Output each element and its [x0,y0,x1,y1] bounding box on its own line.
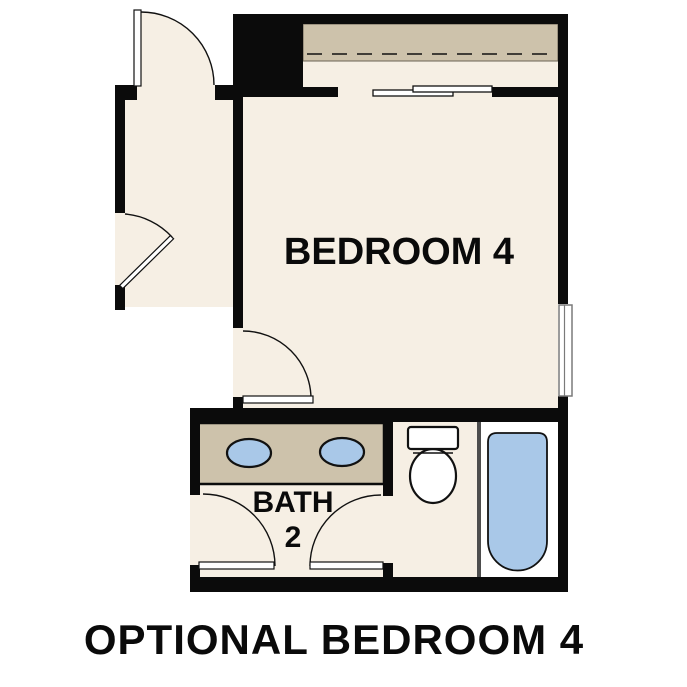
toilet-tank [408,427,458,449]
bath-left-wall [190,422,200,495]
bath-top-wall [190,408,568,422]
hall-left-wall [115,85,125,213]
toilet-compartment-door-leaf [310,562,383,569]
hallway-floor [125,85,233,307]
room-label-bath: BATH [252,486,333,519]
wall-right-upper [558,14,568,304]
toilet-bowl [410,449,456,503]
bedroom-door-leaf [243,396,313,403]
window-frame [559,305,572,396]
bathtub [488,433,547,571]
toilet-compartment-wall-stub [383,563,393,577]
tub-partition-wall [477,422,481,577]
floor-plan: BEDROOM 4 BATH 2 OPTIONAL BEDROOM 4 [0,0,687,687]
door-opening [190,495,200,567]
closet-front-wall-left [233,87,338,97]
room-label-bath-number: 2 [285,521,302,554]
door-opening [233,328,243,397]
caption-title: OPTIONAL BEDROOM 4 [84,616,584,663]
door-opening [115,213,125,287]
bath-bottom-wall [190,577,568,592]
wall-corner-block [233,14,303,88]
hall-top-door-leaf [134,10,141,86]
hall-top-wall-right [215,85,233,100]
bedroom-left-wall [233,97,243,328]
toilet [408,427,458,503]
closet-front-wall-right [492,87,560,97]
closet-sliding-panel-back [413,86,492,92]
door-swing-area [141,12,214,85]
door-opening [383,496,393,563]
wall-right-lower [558,396,568,592]
closet-shelf [303,24,558,61]
vanity-sink-right [320,438,364,466]
toilet-compartment-wall [383,422,393,496]
room-label-bedroom: BEDROOM 4 [284,231,514,273]
window [559,305,572,396]
vanity-sink-left [227,439,271,467]
bath-entry-door-leaf [199,562,274,569]
